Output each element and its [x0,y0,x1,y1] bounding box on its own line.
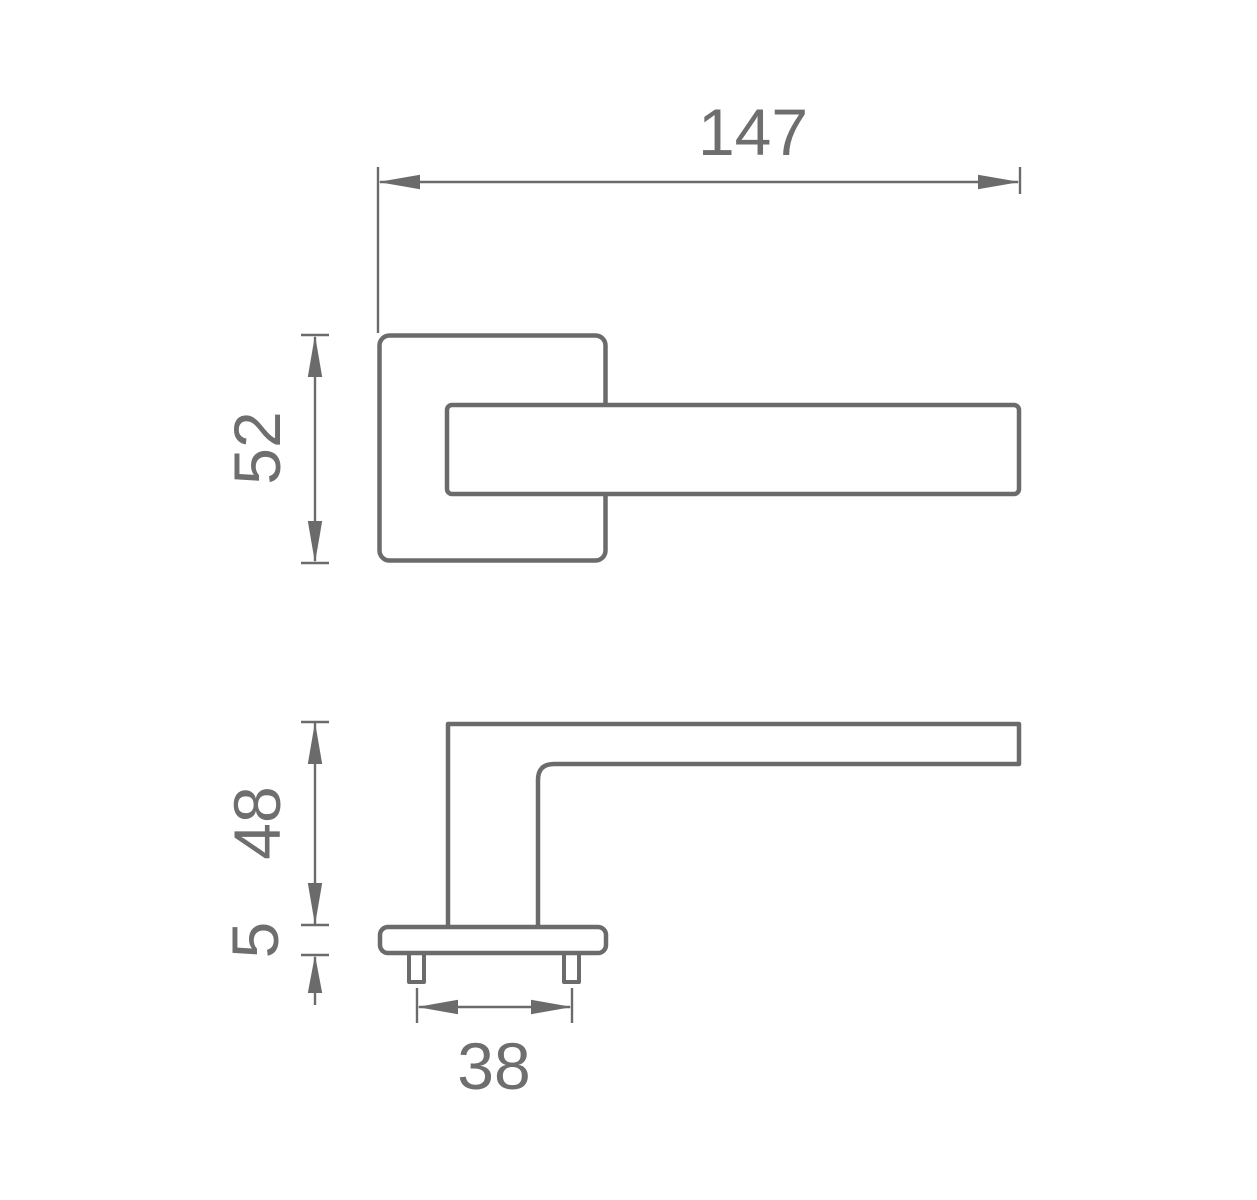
arrowhead-up-outside [308,955,322,993]
arrowhead-up [308,722,322,764]
dimension-rosette-thickness: 5 [218,922,329,1005]
dimension-rosette-size: 52 [220,335,329,563]
drawing-page: 147 52 48 [0,0,1257,1200]
fixing-pin-left [409,953,424,982]
arrowhead-right [531,1000,572,1014]
dimension-handle-height: 48 [220,722,329,925]
dimension-handle-length: 147 [378,95,1020,333]
arrowhead-left [417,1000,458,1014]
fixing-pin-right [564,953,579,982]
arrowhead-down [308,883,322,925]
dimension-fixing-spacing: 38 [417,988,572,1103]
dim-label-fixing-spacing: 38 [457,1029,530,1103]
dim-label-handle-length: 147 [698,95,808,169]
arrowhead-left [378,175,420,189]
side-view: 48 5 38 [218,722,1019,1103]
technical-drawing-canvas: 147 52 48 [0,0,1257,1200]
lever-bar-front [447,405,1019,494]
dim-label-rosette-size: 52 [220,411,294,484]
dim-label-handle-height: 48 [220,786,294,859]
arrowhead-right [978,175,1020,189]
rosette-plate-side [380,927,606,953]
front-view: 147 52 [220,95,1020,563]
arrowhead-down [308,521,322,563]
dim-label-rosette-thickness: 5 [218,922,292,959]
handle-profile-side [448,724,1019,926]
arrowhead-up [308,335,322,377]
